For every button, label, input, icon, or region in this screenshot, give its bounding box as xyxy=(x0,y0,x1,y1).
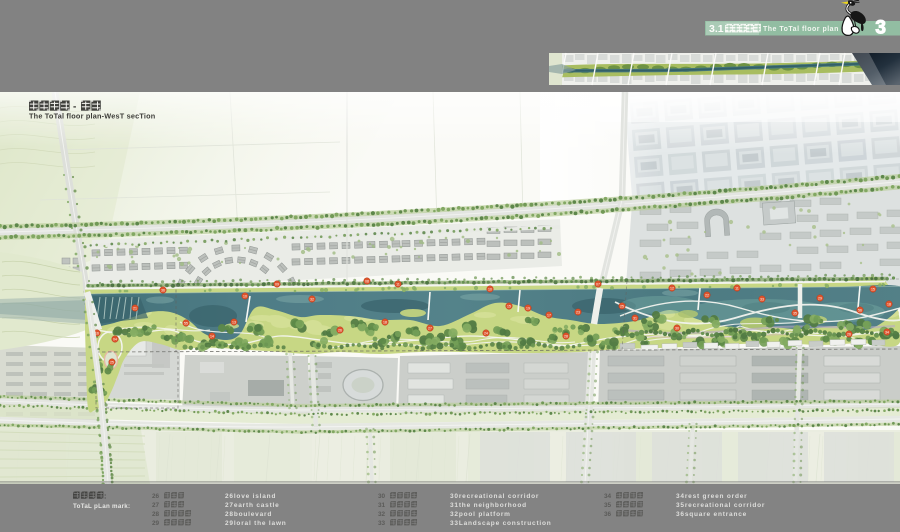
svg-text:30: 30 xyxy=(378,493,386,500)
svg-text:27: 27 xyxy=(152,502,160,509)
svg-text:27earth castle: 27earth castle xyxy=(225,502,280,509)
svg-text:31: 31 xyxy=(378,502,386,509)
svg-text:31the neighborhood: 31the neighborhood xyxy=(450,502,527,509)
svg-text:28: 28 xyxy=(152,511,160,518)
svg-text:30recreational corridor: 30recreational corridor xyxy=(450,493,539,500)
svg-text:33Landscape construction: 33Landscape construction xyxy=(450,520,552,527)
svg-text:32pool platform: 32pool platform xyxy=(450,511,511,518)
svg-text:3.1: 3.1 xyxy=(709,23,724,35)
svg-text::: : xyxy=(104,494,106,501)
svg-text:34: 34 xyxy=(604,493,612,500)
svg-text:35recreational corridor: 35recreational corridor xyxy=(676,502,765,509)
svg-text:3: 3 xyxy=(875,18,886,39)
svg-text:34rest green order: 34rest green order xyxy=(676,493,747,500)
svg-text:33: 33 xyxy=(378,520,386,527)
svg-text:The ToTal floor plan-WesT secT: The ToTal floor plan-WesT secTion xyxy=(29,112,155,121)
svg-text:26: 26 xyxy=(152,493,160,500)
svg-text:The ToTal floor plan: The ToTal floor plan xyxy=(763,26,839,33)
svg-text:26love island: 26love island xyxy=(225,493,276,500)
svg-text:ToTaL pLan mark:: ToTaL pLan mark: xyxy=(73,503,130,510)
svg-text:36: 36 xyxy=(604,511,612,518)
svg-text:29: 29 xyxy=(152,520,160,527)
svg-text:28boulevard: 28boulevard xyxy=(225,511,272,518)
svg-text:32: 32 xyxy=(378,511,386,518)
svg-text:29loral the lawn: 29loral the lawn xyxy=(225,520,287,527)
svg-text:35: 35 xyxy=(604,502,612,509)
svg-text:36square entrance: 36square entrance xyxy=(676,511,747,518)
